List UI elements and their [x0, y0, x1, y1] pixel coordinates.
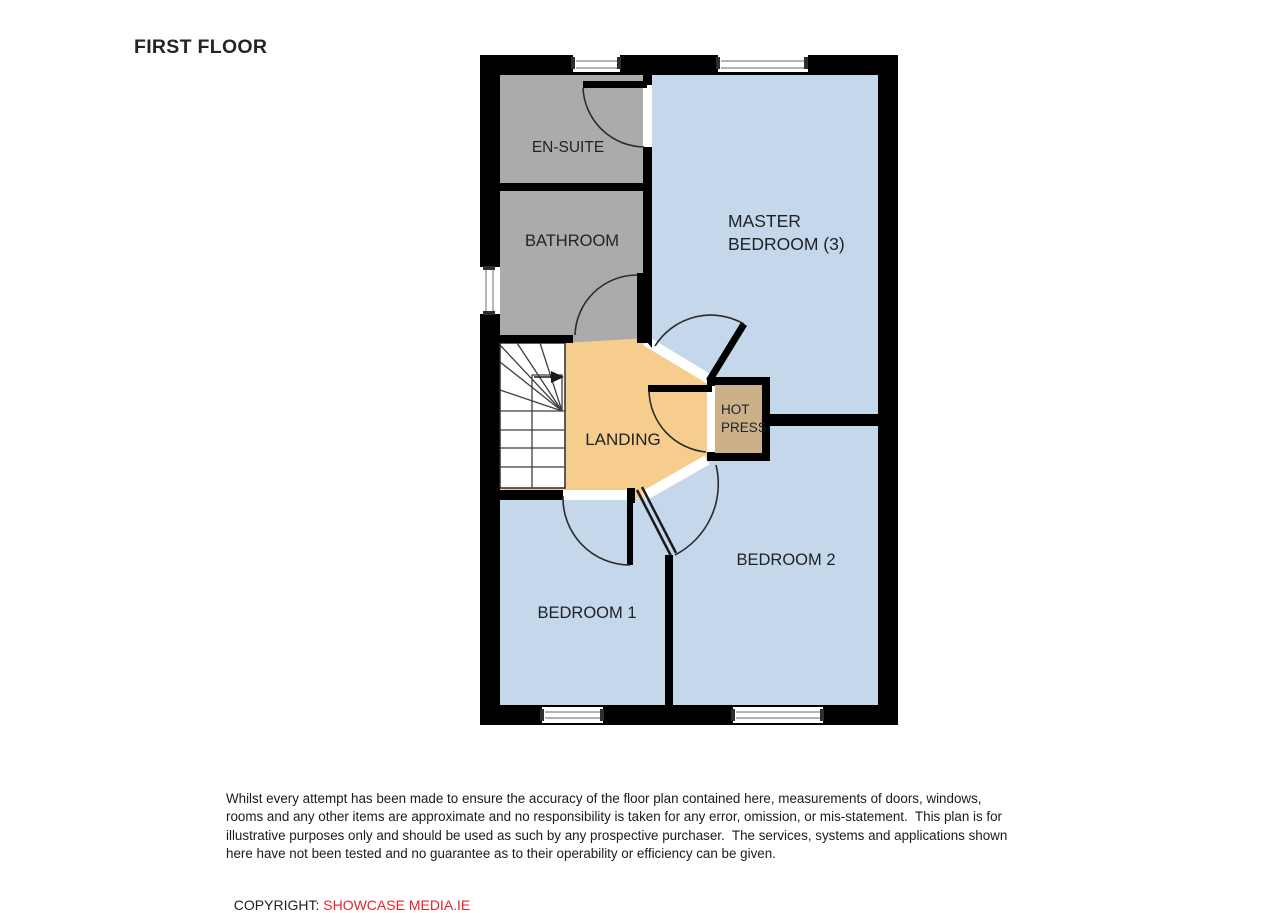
window-left [480, 266, 500, 315]
room-label-hot-press: HOT PRESS [721, 401, 767, 436]
hot-press-line2: PRESS [721, 419, 767, 437]
room-label-bedroom1: BEDROOM 1 [527, 604, 647, 623]
window-top-left [571, 55, 621, 72]
room-label-bathroom: BATHROOM [512, 232, 632, 251]
window-bottom-right [731, 707, 824, 723]
copyright-label: COPYRIGHT: [234, 897, 323, 913]
hot-press-line1: HOT [721, 401, 767, 419]
floor-plan [0, 0, 1280, 905]
disclaimer-line: Whilst every attempt has been made to en… [226, 790, 1007, 808]
copyright-line: COPYRIGHT: SHOWCASE MEDIA.IE [226, 881, 470, 913]
room-label-en-suite: EN-SUITE [518, 139, 618, 157]
room-label-bedroom2: BEDROOM 2 [726, 551, 846, 570]
disclaimer-line: illustrative purposes only and should be… [226, 827, 1007, 845]
room-bathroom-fill [500, 183, 652, 343]
disclaimer: Whilst every attempt has been made to en… [226, 790, 1007, 864]
window-top-right [716, 55, 808, 72]
disclaimer-line: rooms and any other items are approximat… [226, 808, 1007, 826]
master-bedroom-line1: MASTER [728, 210, 845, 233]
room-en-suite-fill [500, 75, 652, 183]
window-bottom-left [540, 707, 604, 723]
copyright-company: SHOWCASE MEDIA.IE [323, 897, 470, 913]
hot-press-door-opening [707, 386, 715, 452]
master-bedroom-line2: BEDROOM (3) [728, 233, 845, 256]
page-title: FIRST FLOOR [134, 36, 267, 59]
disclaimer-line: here have not been tested and no guarant… [226, 845, 1007, 863]
room-label-master-bedroom: MASTER BEDROOM (3) [728, 210, 845, 256]
room-label-landing: LANDING [573, 430, 673, 450]
